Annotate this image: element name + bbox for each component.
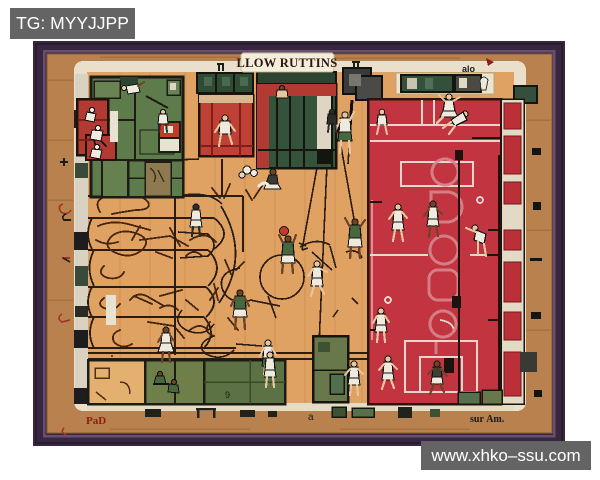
- svg-text:9: 9: [225, 390, 230, 400]
- svg-text:аlо: аlо: [462, 64, 476, 74]
- svg-text:ѕur Аm.: ѕur Аm.: [470, 414, 505, 425]
- svg-text:PaD: PaD: [86, 415, 106, 427]
- svg-text:LLOW RUTTINS: LLOW RUTTINS: [237, 56, 338, 70]
- svg-text:а: а: [308, 412, 314, 423]
